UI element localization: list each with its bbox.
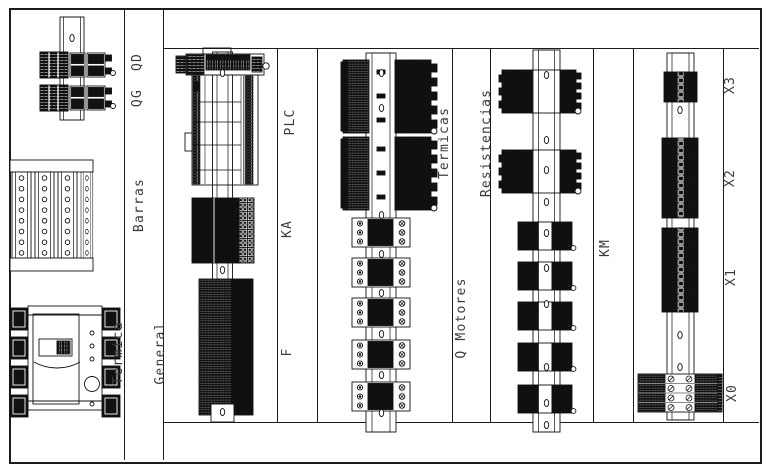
main-frame-bottom	[163, 422, 759, 423]
outer-border	[9, 8, 762, 464]
left-strip-divider-1	[124, 8, 125, 460]
col1-label-divider	[277, 48, 278, 422]
label-termica-general: Termica General	[84, 321, 196, 384]
label-qg-qd: QG QD	[131, 53, 145, 107]
main-frame-top	[163, 48, 759, 49]
panel-layout-drawing: QG QD Barras Termica General PLC KA F Te…	[0, 0, 768, 468]
label-x1: X1	[725, 268, 739, 286]
label-plc: PLC	[284, 108, 298, 135]
col4-left-divider	[633, 48, 634, 422]
label-x0: X0	[726, 384, 740, 402]
left-strip-divider-2	[163, 8, 164, 460]
label-ka: KA	[281, 220, 295, 238]
label-q-motores: Q Motores	[455, 277, 469, 358]
label-x2: X2	[724, 169, 738, 187]
col4-label-divider	[723, 48, 724, 422]
col3-label-divider	[593, 48, 594, 422]
label-termicas-resistencias: Termicas Resistencias	[410, 89, 522, 197]
label-barras: Barras	[133, 178, 147, 232]
label-x3: X3	[724, 76, 738, 94]
col2-left-divider	[317, 48, 318, 422]
label-km: KM	[599, 239, 613, 257]
label-f: F	[281, 347, 295, 356]
